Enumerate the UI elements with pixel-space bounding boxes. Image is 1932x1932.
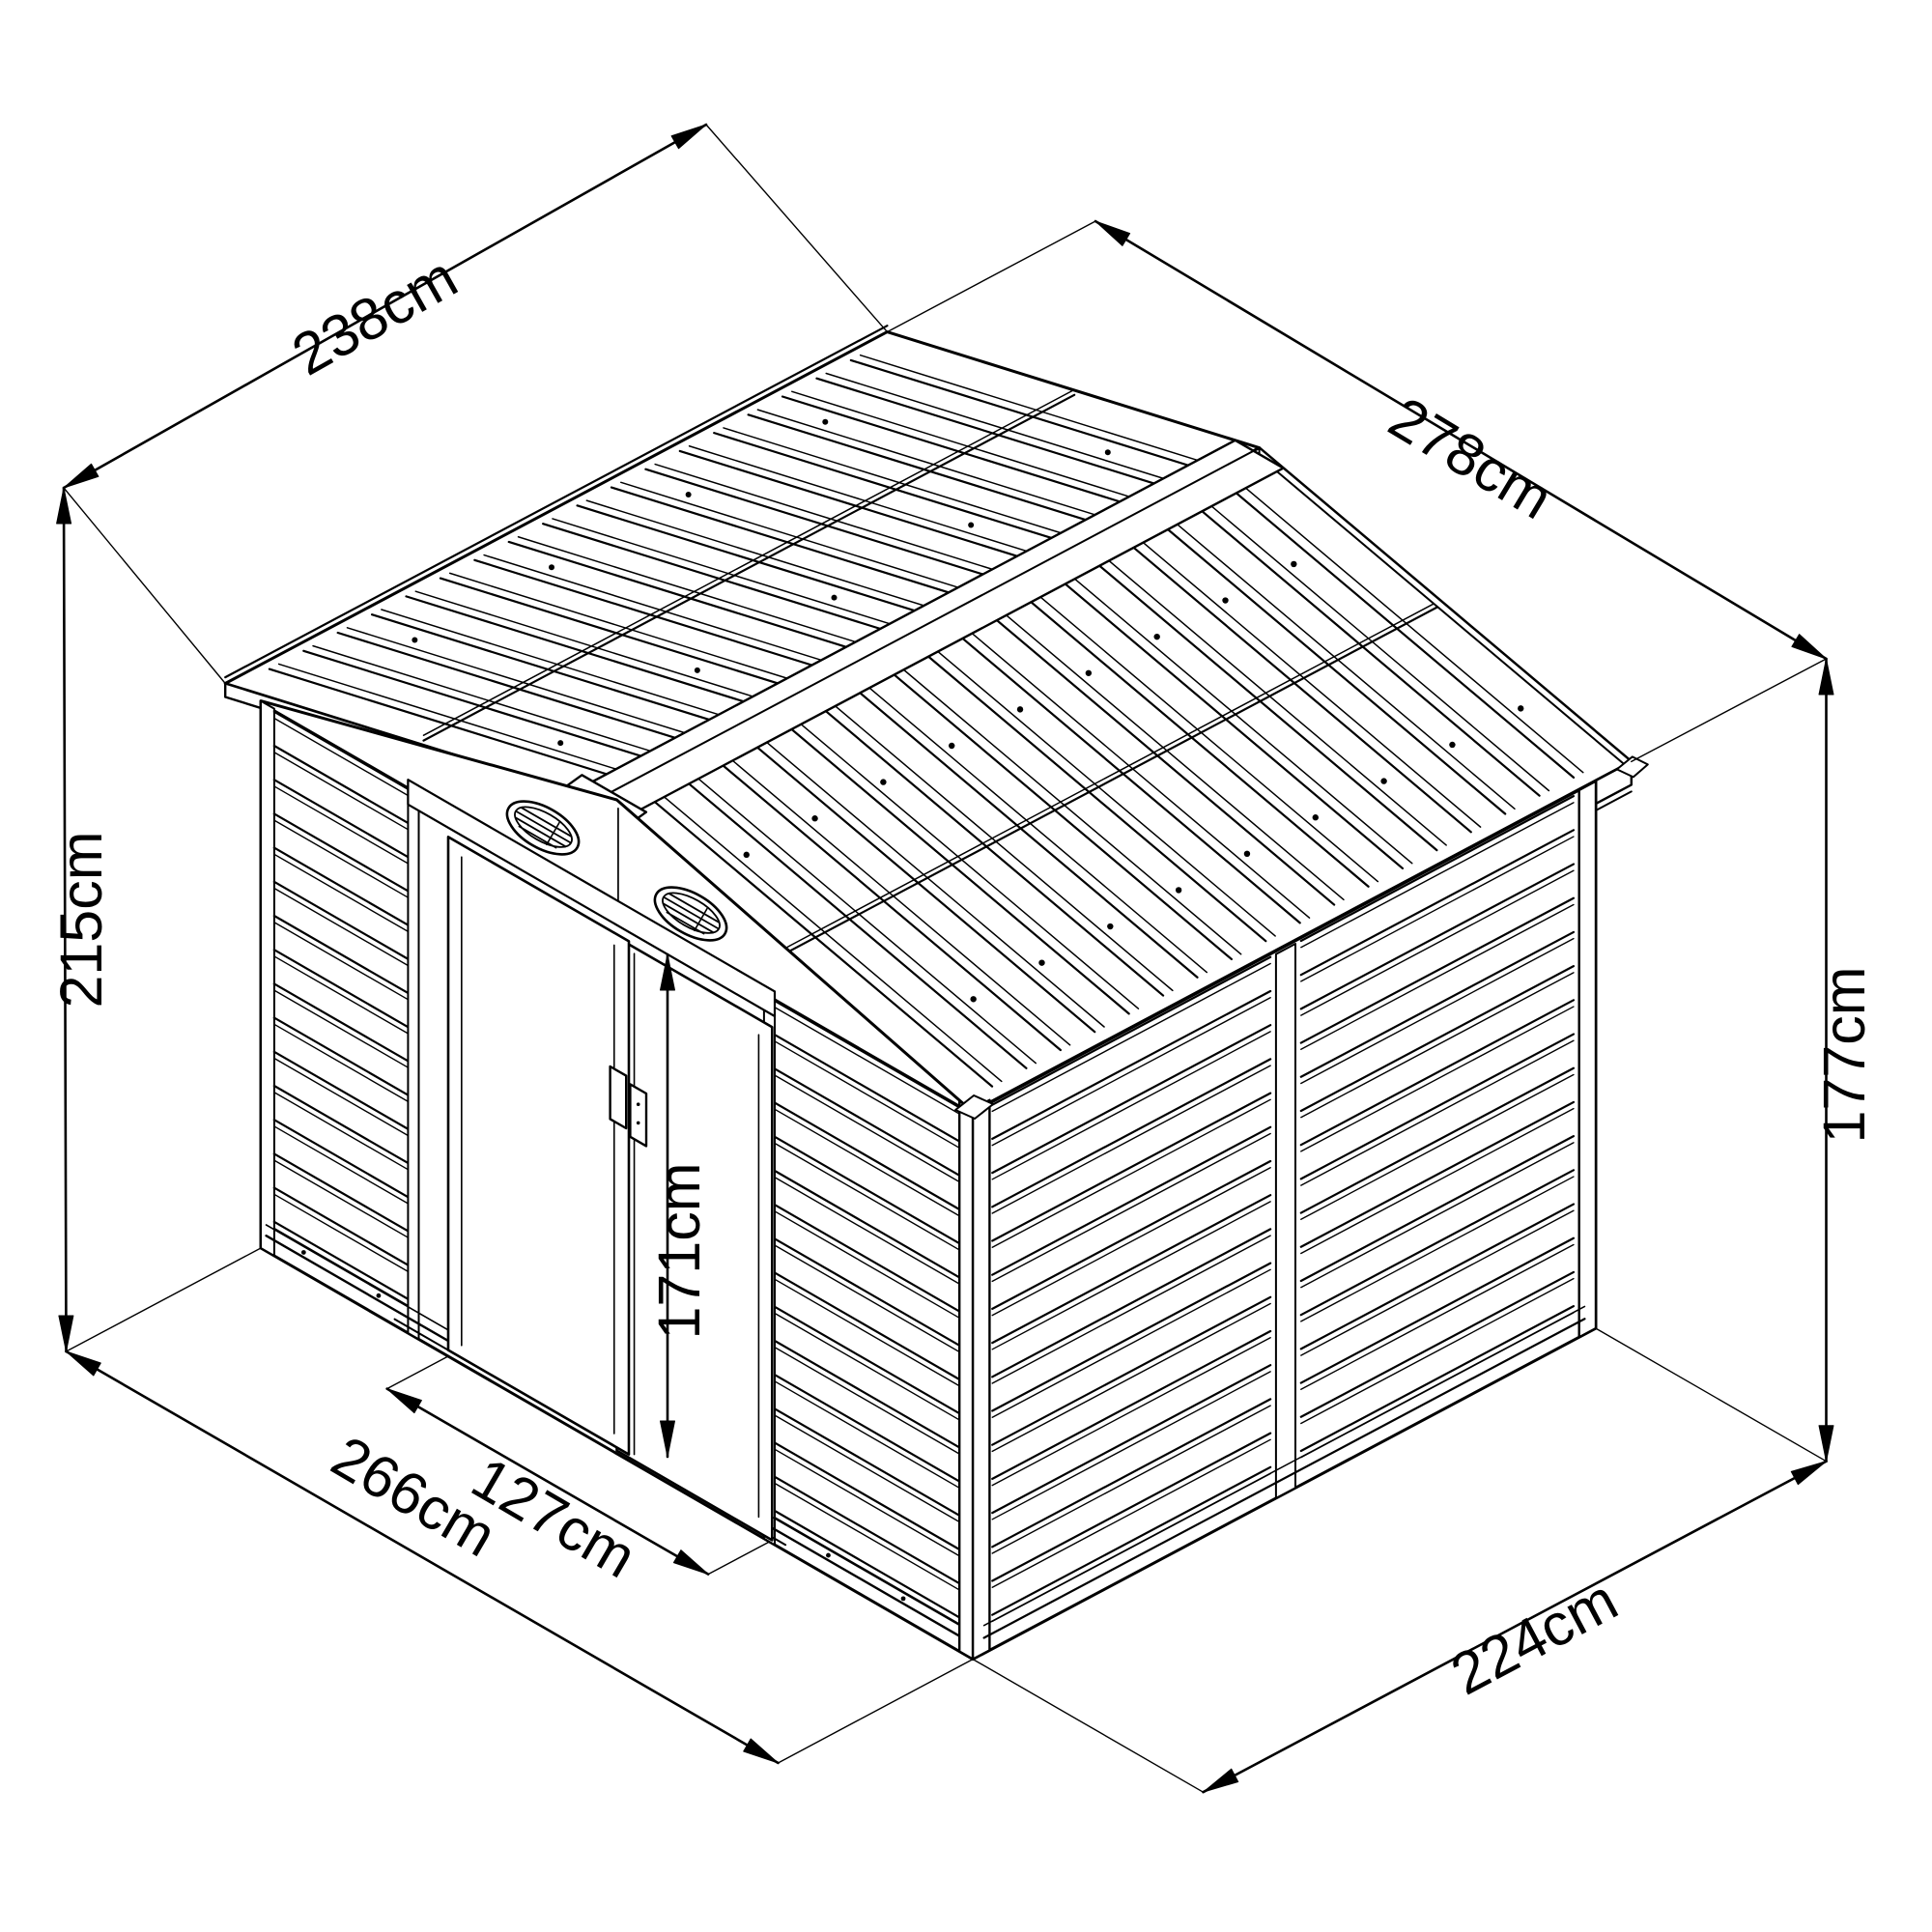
shed-dimension-diagram: 238cm 278cm 215cm 177cm 266cm 127cm 224c… xyxy=(0,0,1932,1932)
diagram-canvas: 238cm 278cm 215cm 177cm 266cm 127cm 224c… xyxy=(0,0,1932,1932)
dimension-label-overall-height: 215cm xyxy=(48,831,114,1008)
dimension-label-wall-height: 177cm xyxy=(1811,966,1877,1143)
dimension-label-door-height: 171cm xyxy=(646,1162,712,1339)
